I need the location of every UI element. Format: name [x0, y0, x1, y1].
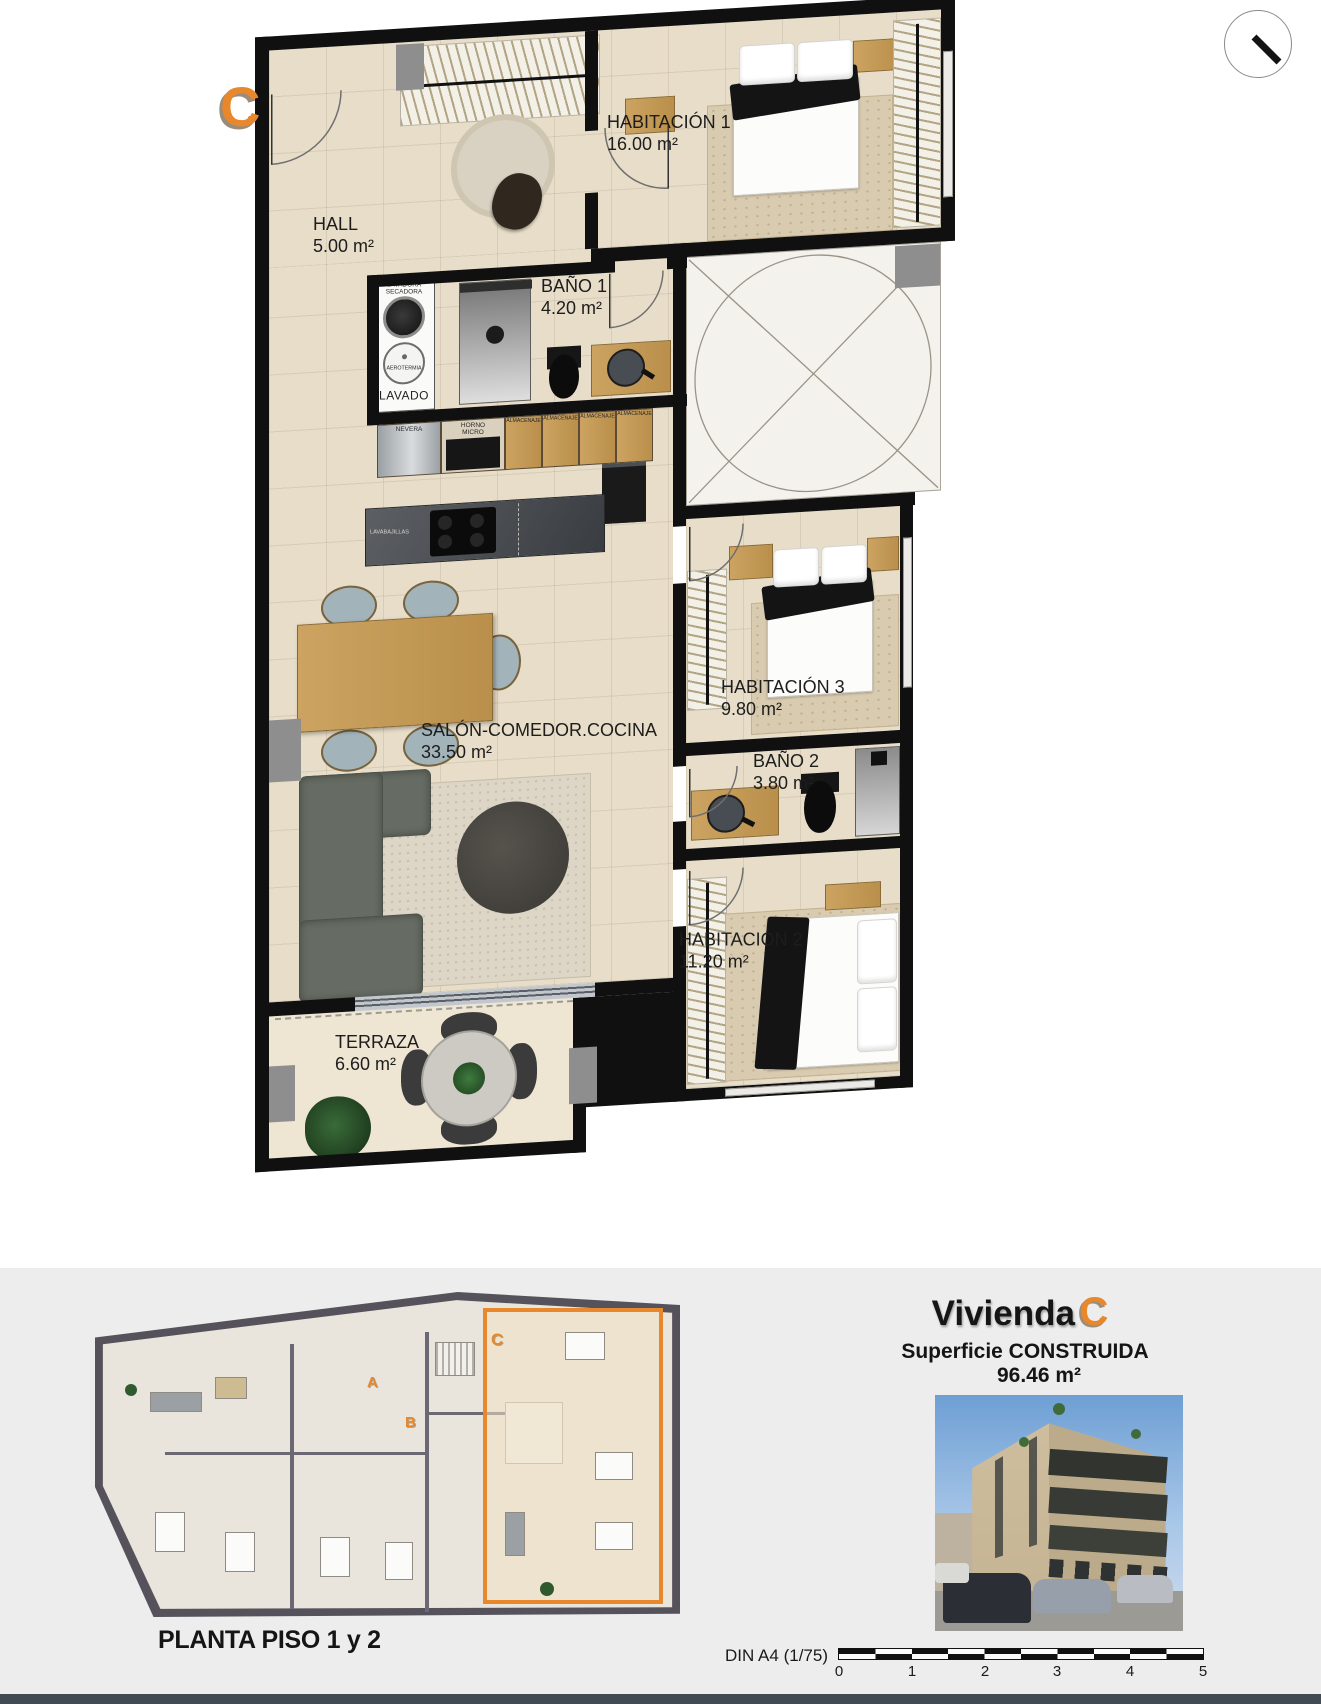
laundry-column: LAVADORASECADORA AEROTERMIA LAVADO — [373, 276, 435, 413]
washer-drum-icon — [383, 295, 425, 340]
key-plan-wall — [290, 1344, 294, 1609]
key-plan-plant-icon — [125, 1384, 137, 1396]
surface-line: Superficie CONSTRUIDA 96.46 m² — [860, 1340, 1190, 1388]
oven-front — [446, 436, 500, 470]
sofa-chaise — [299, 913, 423, 1003]
scale-tick: 1 — [901, 1663, 923, 1680]
horno-micro-label: HORNOMICRO — [442, 422, 504, 436]
wardrobe-rail — [706, 575, 709, 705]
kitchen-cell-oven: HORNOMICRO — [441, 417, 505, 474]
building-photo — [935, 1395, 1183, 1631]
pillow — [773, 547, 819, 588]
almacenaje-label: ALMACENAJE — [543, 417, 578, 423]
key-plan-bed — [565, 1332, 605, 1360]
shower-head-icon — [486, 325, 504, 344]
room-label-habitacion1: HABITACIÓN 116.00 m² — [607, 112, 731, 156]
key-plan-bed — [155, 1512, 185, 1552]
key-plan: A B C — [95, 1292, 680, 1617]
key-plan-unit-c-label: C — [491, 1330, 503, 1350]
scale-label: DIN A4 (1/75) — [700, 1646, 828, 1666]
habitacion1-wardrobe — [893, 17, 941, 228]
wall-segment — [585, 992, 673, 1107]
pillow — [797, 39, 853, 82]
unit-title: Vivienda C — [860, 1290, 1180, 1335]
room-label-habitacion2: HABITACIÓN 211.20 m² — [679, 930, 803, 974]
pillow — [857, 918, 897, 984]
scale-bar-row — [839, 1654, 1203, 1659]
pillow — [821, 544, 867, 585]
photo-van — [935, 1563, 969, 1583]
kitchen-cell-storage: ALMACENAJE — [579, 410, 616, 465]
kitchen-cell-storage: ALMACENAJE — [505, 415, 542, 470]
unit-marker: C — [220, 74, 260, 139]
wall-pillar — [269, 719, 301, 783]
room-label-terraza: TERRAZA6.60 m² — [335, 1032, 419, 1076]
key-plan-bed — [320, 1537, 350, 1577]
wall-segment — [673, 243, 686, 527]
wall-segment — [255, 37, 269, 1173]
pillow — [857, 986, 897, 1052]
kitchen-cell-storage: ALMACENAJE — [542, 413, 579, 468]
surface-label: Superficie CONSTRUIDA — [901, 1340, 1148, 1363]
kitchen-cell-storage: ALMACENAJE — [616, 408, 653, 463]
key-plan-wall — [165, 1452, 425, 1455]
main-floor-plan: LAVADORASECADORA AEROTERMIA LAVADO NEVER… — [255, 0, 955, 1177]
habitacion3-door — [689, 523, 745, 582]
closet-rail — [407, 74, 595, 88]
wall-pillar — [269, 1065, 295, 1123]
key-plan-unit-a-label: A — [367, 1374, 378, 1391]
entry-door — [271, 90, 343, 166]
kitchen-cell-fridge: NEVERA — [377, 421, 441, 478]
sheet-bottom-bar — [0, 1694, 1321, 1704]
key-plan-bed — [595, 1522, 633, 1550]
nevera-label: NEVERA — [378, 426, 440, 433]
shower-bar — [460, 279, 532, 292]
photo-roof-plant-icon — [1131, 1429, 1141, 1439]
scale-tick: 0 — [828, 1663, 850, 1680]
wall-pillar — [569, 1046, 597, 1104]
floor-plan-sheet: { "marker": "C", "plan": { "rooms": { "h… — [0, 0, 1321, 1704]
photo-car — [1033, 1579, 1111, 1613]
hob-icon — [430, 507, 496, 557]
footer-band: A B C PLANTA PISO 1 y 2 Vivienda C Super… — [0, 1268, 1321, 1704]
unit-title-letter: C — [1079, 1290, 1108, 1334]
key-plan-sofa — [150, 1392, 202, 1412]
compass — [1224, 10, 1292, 78]
pillow — [739, 42, 795, 85]
photo-roof-plant-icon — [1019, 1437, 1029, 1447]
key-plan-unit-b-label: B — [405, 1414, 416, 1431]
scale-tick: 3 — [1046, 1663, 1068, 1680]
wardrobe-rail — [916, 24, 919, 222]
lavado-label: LAVADO — [374, 389, 434, 402]
wall-segment — [585, 192, 598, 249]
almacenaje-label: ALMACENAJE — [580, 414, 615, 420]
aerotermia-unit-icon: AEROTERMIA — [383, 341, 425, 386]
island-divider — [518, 503, 519, 555]
wall-segment — [673, 583, 686, 767]
scale-tick: 5 — [1192, 1663, 1214, 1680]
compass-needle-icon — [1225, 11, 1290, 76]
key-plan-bed — [225, 1532, 255, 1572]
unit-title-prefix: Vivienda — [932, 1294, 1075, 1333]
key-plan-plant-icon — [540, 1582, 554, 1596]
wall-pillar — [396, 43, 424, 91]
surface-value: 96.46 m² — [997, 1364, 1081, 1387]
scale-bar — [838, 1648, 1204, 1660]
key-plan-bed — [385, 1542, 413, 1580]
room-label-bano1: BAÑO 14.20 m² — [541, 276, 607, 320]
room-label-bano2: BAÑO 23.80 m² — [753, 751, 819, 795]
window — [903, 537, 912, 688]
bano1-shower — [459, 279, 531, 405]
nightstand — [867, 536, 899, 572]
aerotermia-label: AEROTERMIA — [385, 366, 423, 372]
key-plan-wall — [425, 1332, 429, 1612]
key-plan-sofa — [505, 1512, 525, 1556]
aerotermia-dot — [402, 354, 407, 359]
kitchen-tall-unit — [602, 465, 646, 524]
entry-closet — [400, 34, 600, 126]
nightstand — [825, 881, 881, 910]
room-label-habitacion3: HABITACIÓN 39.80 m² — [721, 677, 845, 721]
window — [943, 51, 953, 198]
photo-car — [1117, 1575, 1173, 1603]
wall-segment — [673, 821, 686, 870]
photo-roof-plant-icon — [1053, 1403, 1065, 1415]
room-label-salon: SALÓN-COMEDOR.COCINA33.50 m² — [421, 720, 657, 764]
almacenaje-label: ALMACENAJE — [617, 412, 652, 418]
lavavajillas-label: LAVABAJILLAS — [370, 530, 426, 536]
wall-segment — [585, 30, 598, 131]
key-plan-table — [215, 1377, 247, 1399]
key-plan-bed — [595, 1452, 633, 1480]
dining-table — [297, 613, 493, 733]
wall-pillar — [895, 244, 940, 289]
almacenaje-label: ALMACENAJE — [506, 419, 541, 425]
scale-tick: 2 — [974, 1663, 996, 1680]
bano1-door — [609, 270, 665, 329]
bano2-door — [689, 766, 739, 819]
habitacion2-door — [689, 867, 745, 926]
bano2-lamp-icon — [871, 751, 887, 766]
scale-tick: 4 — [1119, 1663, 1141, 1680]
wall-segment — [367, 275, 379, 426]
key-plan-title: PLANTA PISO 1 y 2 — [158, 1626, 381, 1655]
room-label-hall: HALL5.00 m² — [313, 214, 374, 258]
key-plan-stairs — [435, 1342, 475, 1376]
